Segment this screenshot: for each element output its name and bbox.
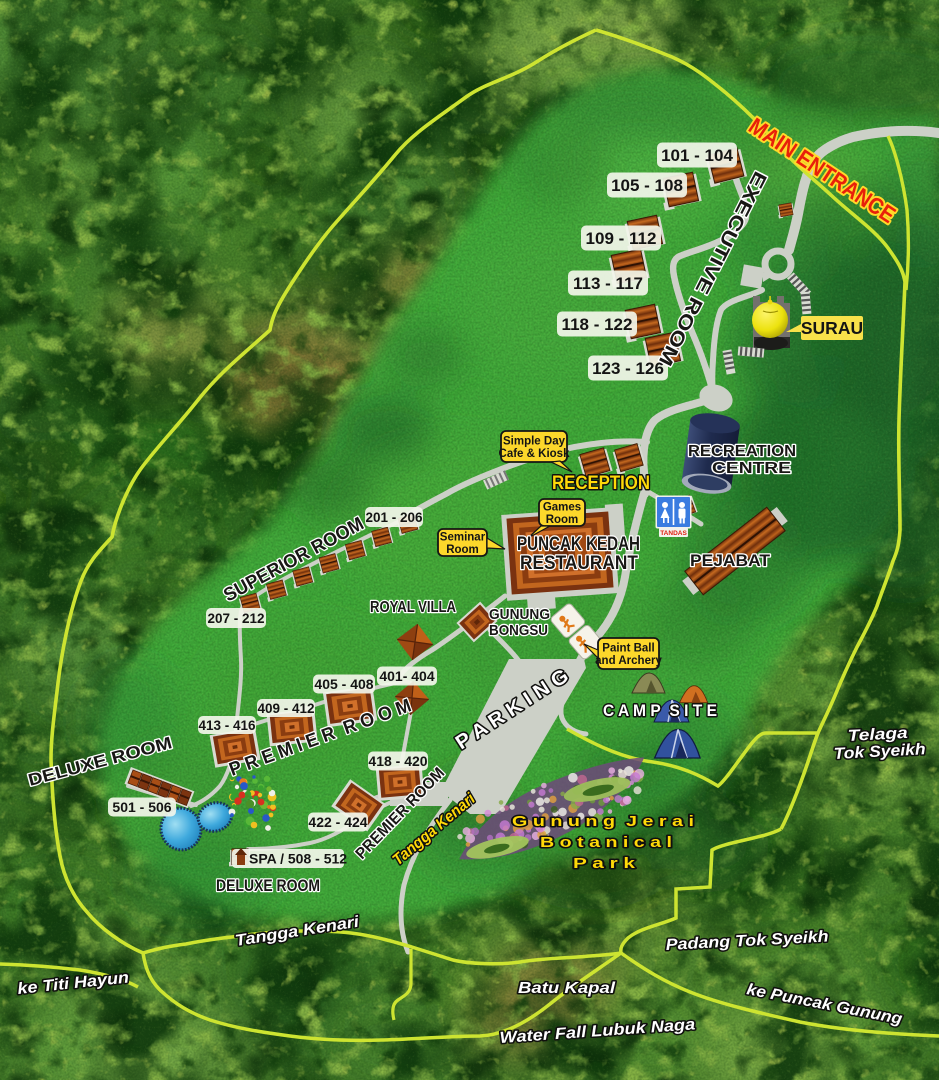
svg-text:409 - 412: 409 - 412 bbox=[257, 701, 314, 716]
svg-text:RECEPTION: RECEPTION bbox=[552, 473, 650, 494]
svg-text:Paint Ball: Paint Ball bbox=[602, 642, 654, 654]
svg-text:501 - 506: 501 - 506 bbox=[112, 799, 171, 815]
svg-text:422 - 424: 422 - 424 bbox=[308, 814, 367, 830]
svg-text:Seminar: Seminar bbox=[440, 531, 486, 543]
svg-text:and Archery: and Archery bbox=[595, 655, 662, 667]
svg-text:C A M P S I T E: C A M P S I T E bbox=[603, 701, 717, 720]
svg-text:207 - 212: 207 - 212 bbox=[207, 611, 264, 626]
svg-text:401- 404: 401- 404 bbox=[379, 668, 434, 684]
svg-text:PEJABAT: PEJABAT bbox=[690, 551, 771, 570]
svg-text:Room: Room bbox=[446, 544, 479, 556]
svg-text:CENTRE: CENTRE bbox=[712, 460, 791, 477]
svg-text:RECREATION: RECREATION bbox=[688, 443, 796, 460]
svg-text:P a r k: P a r k bbox=[573, 855, 636, 872]
svg-text:101 - 104: 101 - 104 bbox=[661, 146, 733, 165]
svg-text:418 - 420: 418 - 420 bbox=[368, 753, 427, 769]
svg-text:Room: Room bbox=[546, 514, 579, 526]
svg-text:109 - 112: 109 - 112 bbox=[586, 229, 657, 248]
svg-text:B o t a n i c a l: B o t a n i c a l bbox=[540, 834, 672, 851]
svg-text:118 - 122: 118 - 122 bbox=[562, 315, 633, 334]
svg-text:G u n u n g J e r a i: G u n u n g J e r a i bbox=[512, 813, 694, 830]
svg-text:DELUXE ROOM: DELUXE ROOM bbox=[216, 876, 320, 895]
svg-text:105 - 108: 105 - 108 bbox=[611, 176, 683, 195]
svg-text:BONGSU: BONGSU bbox=[489, 622, 548, 639]
svg-text:413 - 416: 413 - 416 bbox=[198, 718, 256, 733]
svg-text:SURAU: SURAU bbox=[801, 318, 863, 338]
svg-text:113 - 117: 113 - 117 bbox=[573, 274, 643, 293]
svg-text:PUNCAK KEDAH: PUNCAK KEDAH bbox=[517, 534, 640, 555]
svg-text:Cafe & Kiosk: Cafe & Kiosk bbox=[499, 448, 571, 460]
svg-text:123 - 126: 123 - 126 bbox=[592, 359, 664, 378]
svg-text:TANDAS: TANDAS bbox=[660, 530, 687, 537]
svg-text:Simple Day: Simple Day bbox=[503, 435, 566, 447]
svg-text:GUNUNG: GUNUNG bbox=[489, 606, 550, 623]
svg-text:201 - 206: 201 - 206 bbox=[365, 510, 423, 525]
svg-text:RESTAURANT: RESTAURANT bbox=[520, 553, 638, 574]
svg-text:405 - 408: 405 - 408 bbox=[314, 676, 373, 692]
svg-text:Batu Kapal: Batu Kapal bbox=[518, 980, 616, 997]
svg-text:ROYAL VILLA: ROYAL VILLA bbox=[370, 599, 456, 616]
svg-text:SPA / 508 - 512: SPA / 508 - 512 bbox=[249, 851, 347, 867]
svg-text:Games: Games bbox=[543, 501, 581, 513]
